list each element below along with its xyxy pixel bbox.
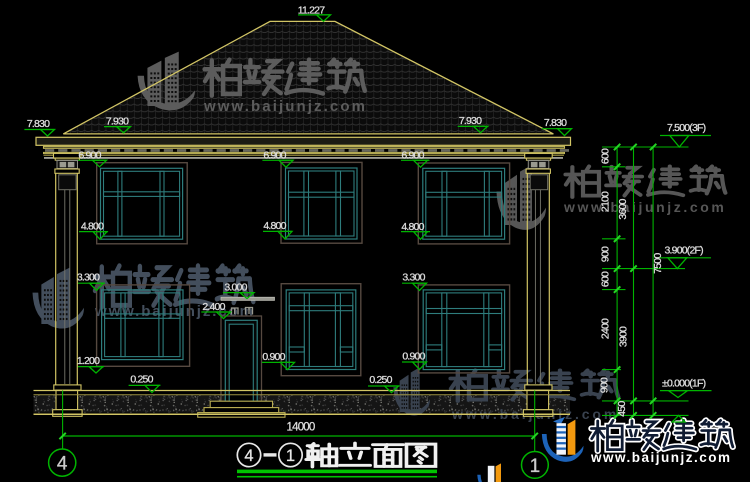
svg-text:0.250: 0.250 — [369, 374, 392, 386]
svg-text:6.900: 6.900 — [263, 149, 286, 161]
svg-text:4.800: 4.800 — [81, 220, 104, 232]
svg-text:6.900: 6.900 — [401, 149, 424, 161]
svg-text:2100: 2100 — [600, 191, 612, 212]
svg-text:1: 1 — [286, 447, 295, 465]
svg-text:900: 900 — [600, 246, 612, 262]
svg-text:1.200: 1.200 — [77, 355, 100, 367]
svg-text:3.300: 3.300 — [77, 271, 100, 283]
svg-text:0.900: 0.900 — [262, 351, 285, 363]
svg-text:7.830: 7.830 — [544, 117, 567, 129]
svg-text:3600: 3600 — [617, 198, 629, 219]
svg-text:±0.000(1F): ±0.000(1F) — [662, 377, 706, 389]
svg-text:3900: 3900 — [618, 326, 630, 347]
svg-text:7.500(3F): 7.500(3F) — [667, 122, 706, 134]
svg-text:900: 900 — [599, 377, 611, 393]
svg-text:4: 4 — [57, 454, 68, 475]
svg-text:0.250: 0.250 — [130, 373, 153, 385]
svg-text:6.900: 6.900 — [78, 149, 101, 161]
svg-text:600: 600 — [600, 148, 612, 164]
svg-text:7500: 7500 — [652, 253, 664, 274]
svg-text:7.930: 7.930 — [459, 115, 482, 127]
svg-text:2400: 2400 — [600, 318, 612, 339]
svg-text:3.000: 3.000 — [224, 282, 247, 294]
svg-text:1: 1 — [530, 456, 541, 477]
svg-text:www.baijunjz.com: www.baijunjz.com — [203, 98, 367, 115]
svg-text:14000: 14000 — [287, 422, 315, 434]
svg-text:450: 450 — [616, 401, 628, 417]
svg-text:www.baijunjz.com: www.baijunjz.com — [590, 450, 732, 465]
svg-text:2.400: 2.400 — [202, 301, 225, 313]
svg-text:0.900: 0.900 — [402, 350, 425, 362]
svg-text:www.baijunjz.com: www.baijunjz.com — [563, 199, 726, 215]
svg-text:4.800: 4.800 — [263, 220, 286, 232]
svg-text:3.900(2F): 3.900(2F) — [665, 244, 704, 256]
svg-text:3.300: 3.300 — [402, 271, 425, 283]
svg-text:7.930: 7.930 — [106, 116, 129, 128]
svg-text:4: 4 — [244, 447, 253, 465]
svg-text:600: 600 — [600, 271, 612, 287]
svg-text:7.830: 7.830 — [27, 118, 50, 130]
